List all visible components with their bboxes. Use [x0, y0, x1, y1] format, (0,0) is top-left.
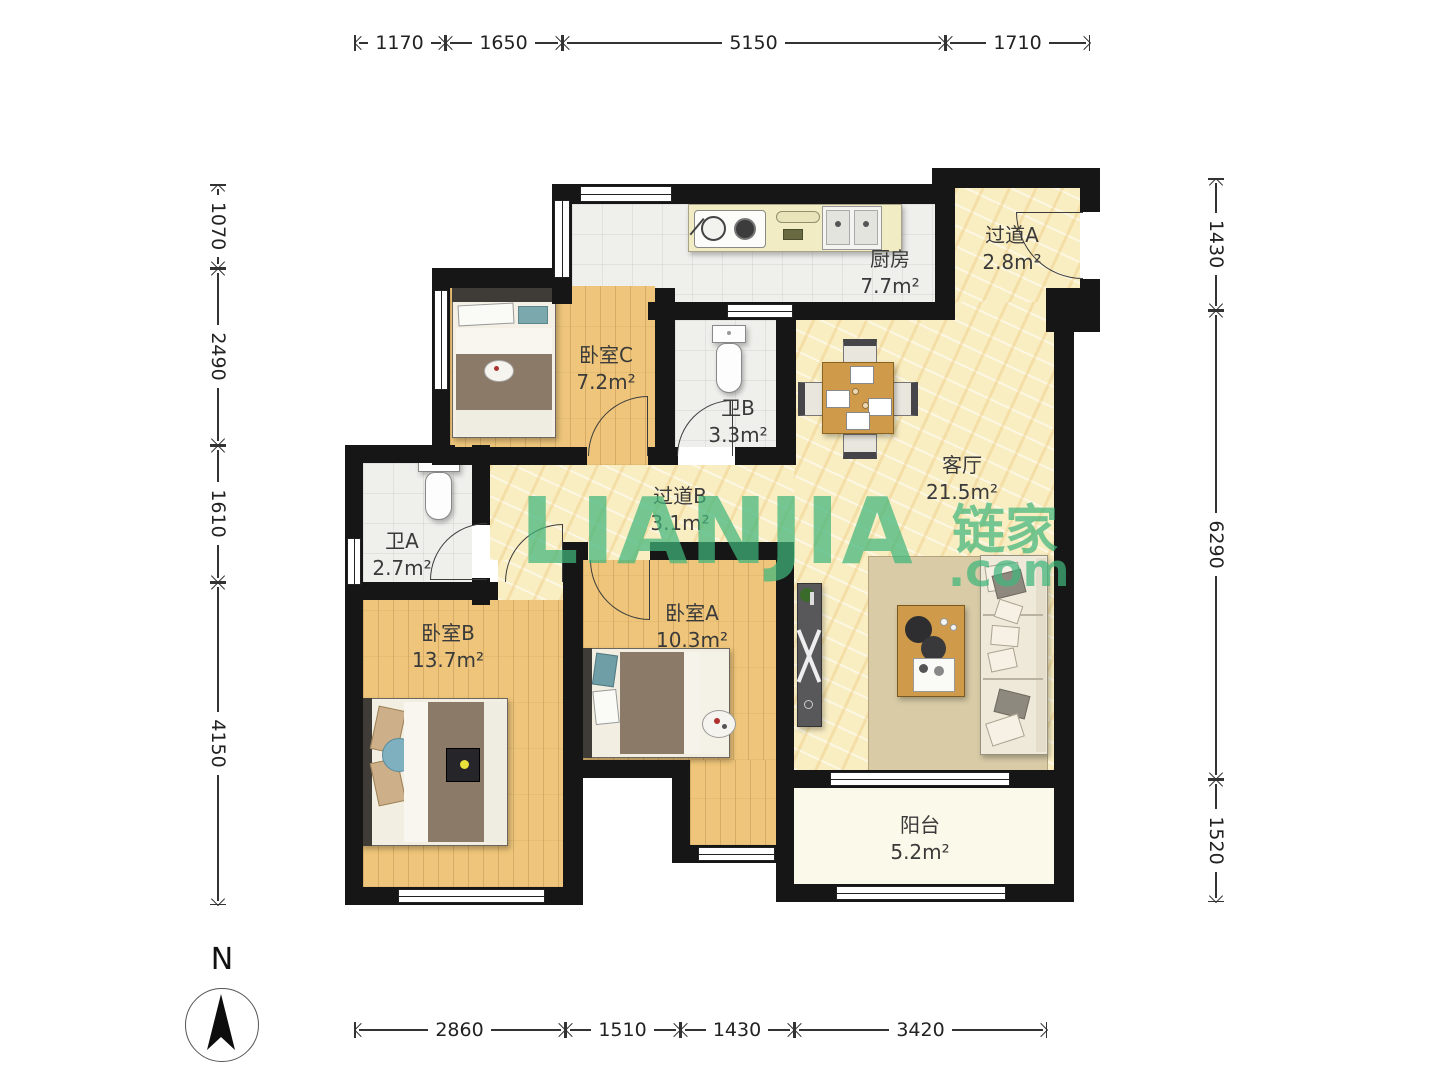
decor-cup — [950, 624, 957, 631]
wall-segment — [472, 445, 490, 525]
wall-segment — [776, 542, 794, 788]
dim-line — [799, 1029, 890, 1031]
remote — [810, 592, 814, 605]
bed-headboard — [452, 288, 556, 302]
window — [836, 886, 1006, 900]
bed-sheet — [456, 328, 552, 354]
dining-chair-south — [843, 434, 877, 459]
dim-arrow — [211, 581, 225, 595]
dim-arrow — [211, 568, 225, 582]
dim-arrow — [551, 1023, 565, 1037]
dim-arrow — [931, 36, 945, 50]
tray — [913, 658, 955, 692]
dim-arrow — [211, 267, 225, 281]
compass-needle-icon — [202, 992, 240, 1054]
dim-value: 1610 — [207, 482, 229, 544]
dim-line — [359, 1029, 429, 1031]
dim-bottom-3: 1430 — [680, 1017, 794, 1043]
dim-arrow — [353, 1023, 367, 1037]
dim-value: 1430 — [706, 1019, 768, 1041]
room-name: 客厅 — [897, 452, 1027, 479]
room-area: 2.8m² — [947, 249, 1077, 276]
bed-decor-dot — [714, 718, 720, 724]
dim-value: 1710 — [986, 32, 1048, 54]
wall-segment — [1054, 310, 1074, 902]
sink-drain-right — [863, 221, 869, 227]
wall-segment — [432, 447, 587, 465]
dim-top-3: 5150 — [562, 30, 945, 56]
dim-arrow — [1209, 309, 1223, 323]
room-area: 3.1m² — [615, 510, 745, 537]
compass-north-label: N — [200, 942, 244, 977]
bed-decor-dot — [722, 724, 727, 729]
room-name: 卧室B — [383, 620, 513, 647]
wall-segment — [563, 542, 583, 905]
room-area: 3.3m² — [673, 422, 803, 449]
bed-blanket — [620, 652, 684, 754]
dim-arrow — [211, 444, 225, 458]
dim-arrow — [561, 36, 575, 50]
bed-decor-dot — [494, 366, 499, 371]
room-label-kitchen: 厨房 7.7m² — [825, 246, 955, 300]
dining-chair-east — [893, 382, 918, 416]
dim-line — [567, 42, 723, 44]
room-label-hallway-a: 过道A 2.8m² — [947, 222, 1077, 276]
dim-left-3: 1610 — [205, 445, 231, 582]
dim-line — [491, 1029, 561, 1031]
dim-arrow — [1209, 888, 1223, 902]
dim-arrow — [780, 1023, 794, 1037]
dim-value: 5150 — [722, 32, 784, 54]
room-area: 7.7m² — [825, 273, 955, 300]
bed-pillow-teal — [592, 653, 618, 688]
room-area: 2.7m² — [337, 555, 467, 582]
place-setting-east — [868, 398, 892, 416]
bed-pillow-teal — [518, 306, 548, 324]
room-label-bedroom-c: 卧室C 7.2m² — [541, 342, 671, 396]
wall-segment — [932, 168, 1100, 188]
dim-arrow — [793, 1023, 807, 1037]
room-label-bath-b: 卫B 3.3m² — [673, 395, 803, 449]
kitchen-control-panel — [783, 229, 803, 240]
room-area: 13.7m² — [383, 647, 513, 674]
dim-line — [785, 42, 941, 44]
dim-line — [952, 1029, 1043, 1031]
dim-arrow — [1076, 36, 1090, 50]
sofa-seam — [983, 678, 1043, 680]
dim-left-2: 2490 — [205, 268, 231, 445]
toilet-button — [727, 331, 731, 335]
dim-value: 2490 — [207, 325, 229, 387]
dim-arrow — [1209, 296, 1223, 310]
place-setting-north — [850, 366, 874, 384]
cup — [852, 388, 859, 395]
dim-arrow — [211, 431, 225, 445]
window — [727, 304, 793, 318]
speaker — [804, 700, 813, 709]
dim-arrow — [431, 36, 445, 50]
wall-segment — [648, 447, 678, 465]
stove-burner-left — [701, 216, 726, 241]
toilet-bowl-bath-b — [716, 343, 742, 393]
dim-left-4: 4150 — [205, 582, 231, 905]
wall-segment — [776, 770, 794, 902]
window — [398, 889, 545, 903]
bed-sheet — [404, 702, 428, 842]
dim-arrow — [1033, 1023, 1047, 1037]
dim-line — [217, 775, 219, 901]
sofa-pillow — [990, 625, 1020, 647]
wall-segment — [648, 302, 955, 320]
dim-value: 1510 — [591, 1019, 653, 1041]
wall-segment — [563, 542, 588, 560]
dim-arrow — [944, 36, 958, 50]
bed-decor — [702, 710, 736, 738]
dim-arrow — [548, 36, 562, 50]
dim-value: 1520 — [1205, 809, 1227, 871]
dim-arrow — [679, 1023, 693, 1037]
floorplan-canvas: 厨房 7.7m² 过道A 2.8m² 卧室C 7.2m² 卫B 3.3m² 客厅… — [0, 0, 1440, 1080]
dim-bottom-1: 2860 — [354, 1017, 565, 1043]
range-hood — [776, 211, 820, 223]
dim-value: 2860 — [428, 1019, 490, 1041]
dim-value: 6290 — [1205, 513, 1227, 575]
dining-chair-north — [843, 339, 877, 364]
room-label-balcony: 阳台 5.2m² — [855, 812, 985, 866]
dim-right-2: 6290 — [1203, 310, 1229, 779]
tray-item — [919, 664, 928, 673]
bed-decor — [484, 360, 514, 382]
room-name: 过道B — [615, 483, 745, 510]
sink-drain-left — [835, 221, 841, 227]
tray-item — [934, 666, 944, 676]
wall-segment — [650, 542, 794, 560]
cup — [862, 402, 869, 409]
dim-value: 1430 — [1205, 213, 1227, 275]
dim-arrow — [1209, 765, 1223, 779]
room-label-living: 客厅 21.5m² — [897, 452, 1027, 506]
room-label-bedroom-a: 卧室A 10.3m² — [627, 600, 757, 654]
bed-pillow — [592, 689, 619, 725]
bed-tray-item — [460, 760, 469, 769]
window — [434, 290, 448, 390]
dim-arrow — [1209, 177, 1223, 191]
dim-value: 3420 — [889, 1019, 951, 1041]
bed-mattress-edge — [700, 652, 728, 754]
room-area: 10.3m² — [627, 627, 757, 654]
dim-line — [217, 587, 219, 713]
room-label-hallway-b: 过道B 3.1m² — [615, 483, 745, 537]
wall-segment — [432, 268, 572, 288]
room-area: 7.2m² — [541, 369, 671, 396]
place-setting-west — [826, 390, 850, 408]
room-area: 5.2m² — [855, 839, 985, 866]
sink-basin-right — [854, 210, 878, 245]
room-name: 过道A — [947, 222, 1077, 249]
dim-value: 1170 — [368, 32, 430, 54]
room-name: 卧室A — [627, 600, 757, 627]
dim-top-2: 1650 — [445, 30, 562, 56]
window — [830, 772, 1010, 786]
place-setting-south — [846, 412, 870, 430]
dim-bottom-4: 3420 — [794, 1017, 1047, 1043]
stove-burner-right — [734, 218, 756, 240]
wall-segment — [345, 582, 498, 600]
dim-arrow — [211, 891, 225, 905]
wall-segment — [563, 760, 690, 778]
floor-bedroom-a-wing — [690, 760, 776, 845]
decor-cup — [940, 618, 948, 626]
dim-value: 4150 — [207, 712, 229, 774]
window — [580, 186, 672, 202]
dim-left-1: 1070 — [205, 184, 231, 268]
room-name: 厨房 — [825, 246, 955, 273]
room-name: 卧室C — [541, 342, 671, 369]
toilet-bowl-bath-a — [425, 472, 452, 520]
dim-arrow — [353, 36, 367, 50]
sink-basin-left — [826, 210, 850, 245]
room-label-bedroom-b: 卧室B 13.7m² — [383, 620, 513, 674]
wall-segment — [1080, 168, 1100, 212]
dim-arrow — [564, 1023, 578, 1037]
dim-line — [1215, 576, 1217, 775]
dim-right-3: 1520 — [1203, 779, 1229, 902]
room-name: 卫B — [673, 395, 803, 422]
bed-fold — [684, 652, 700, 754]
wall-segment — [345, 582, 363, 905]
room-label-bath-a: 卫A 2.7m² — [337, 528, 467, 582]
dim-arrow — [444, 36, 458, 50]
window — [698, 847, 775, 861]
bed-foot-sheet — [484, 702, 506, 842]
dim-right-1: 1430 — [1203, 178, 1229, 310]
dim-arrow — [1209, 778, 1223, 792]
dim-line — [1215, 315, 1217, 514]
bed-pillow — [457, 303, 514, 327]
dim-arrow — [666, 1023, 680, 1037]
bed-foot-sheet — [456, 410, 552, 436]
dim-top-4: 1710 — [945, 30, 1090, 56]
room-area: 21.5m² — [897, 479, 1027, 506]
room-name: 卫A — [337, 528, 467, 555]
window — [554, 200, 570, 278]
room-name: 阳台 — [855, 812, 985, 839]
dim-value: 1070 — [207, 195, 229, 257]
dim-bottom-2: 1510 — [565, 1017, 680, 1043]
dim-value: 1650 — [472, 32, 534, 54]
dim-top-1: 1170 — [354, 30, 445, 56]
sofa-backrest — [1036, 558, 1046, 752]
